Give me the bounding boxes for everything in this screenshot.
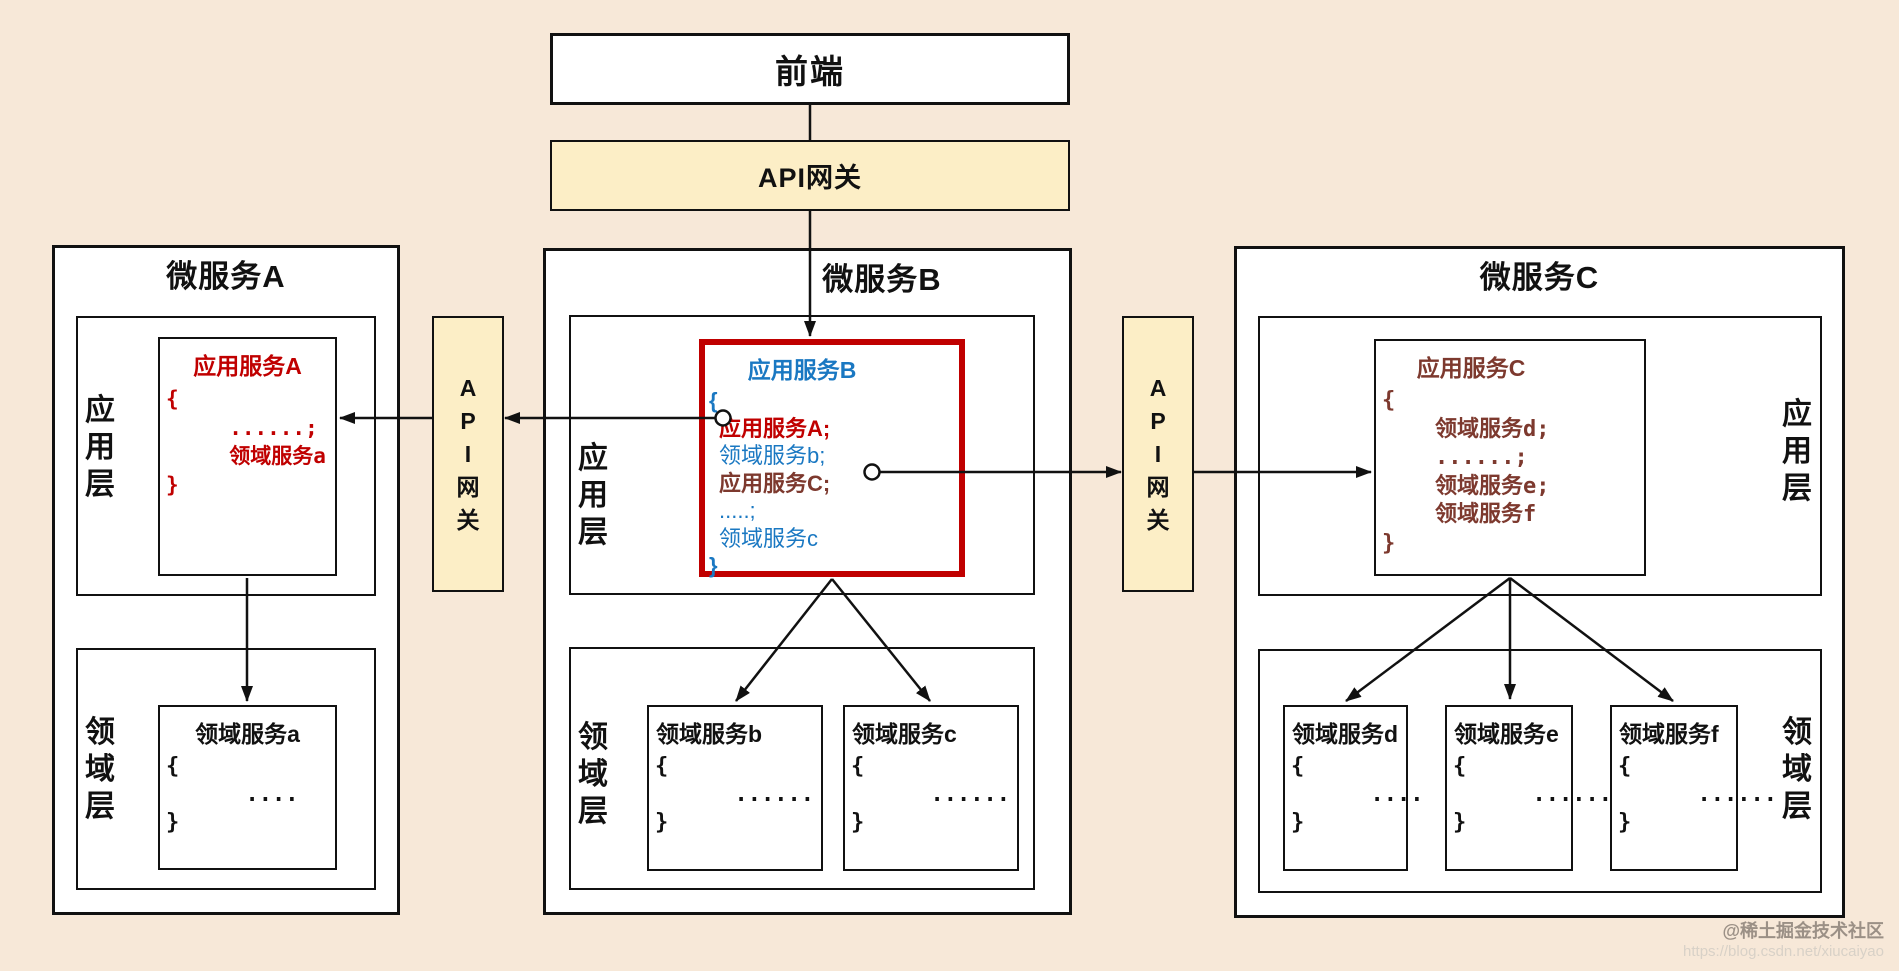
frontend-box: 前端: [550, 33, 1070, 105]
domain-service-a-title: 领域服务a: [160, 707, 335, 749]
api-gateway-left-label: A P I 网 关: [457, 372, 480, 537]
service-a-application-layer-label: 应 用 层: [82, 392, 118, 503]
microservice-c-title: 微服务C: [1234, 252, 1845, 297]
watermark-url: https://blog.csdn.net/xiucaiyao: [1683, 943, 1884, 961]
app-service-a-box: 应用服务A { ......; 领域服务a }: [158, 337, 337, 576]
code-line-dots: .....;: [705, 497, 959, 525]
code-line-domain-service-b: 领域服务b;: [705, 442, 959, 470]
code-line-close-brace: }: [705, 552, 959, 580]
domain-service-f-box: 领域服务f { ...... }: [1610, 705, 1738, 871]
code-line-app-service-c: 应用服务C;: [705, 470, 959, 498]
domain-service-b-title: 领域服务b: [649, 707, 821, 749]
app-service-c-body: { 领域服务d; ......; 领域服务e; 领域服务f }: [1382, 387, 1644, 558]
domain-service-e-title: 领域服务e: [1447, 707, 1571, 749]
service-b-application-layer-label: 应 用 层: [575, 440, 611, 551]
code-line-app-service-a: 应用服务A;: [705, 415, 959, 443]
app-service-c-box: 应用服务C { 领域服务d; ......; 领域服务e; 领域服务f }: [1374, 339, 1646, 576]
watermark: @稀土掘金技术社区 https://blog.csdn.net/xiucaiya…: [1683, 921, 1884, 961]
app-service-b-box: 应用服务B { 应用服务A; 领域服务b; 应用服务C; .....; 领域服务…: [699, 339, 965, 577]
microservice-a-title: 微服务A: [52, 251, 400, 296]
app-service-a-body: { ......; 领域服务a }: [166, 385, 335, 499]
service-a-domain-layer-label: 领 域 层: [82, 714, 118, 825]
microservice-b-title: 微服务B: [712, 254, 1052, 299]
service-b-domain-layer-label: 领 域 层: [575, 719, 611, 830]
watermark-community: @稀土掘金技术社区: [1683, 921, 1884, 943]
domain-service-f-body: { ...... }: [1618, 753, 1736, 837]
app-service-b-title: 应用服务B: [705, 345, 959, 385]
api-gateway-right-box: A P I 网 关: [1122, 316, 1194, 592]
api-gateway-right-label: A P I 网 关: [1147, 372, 1170, 537]
service-c-application-layer-label: 应 用 层: [1779, 396, 1815, 507]
diagram-canvas: 前端 API网关 微服务A 应 用 层 应用服务A { ......; 领域服务…: [0, 0, 1899, 971]
app-service-a-title: 应用服务A: [160, 339, 335, 381]
service-c-domain-layer-label: 领 域 层: [1779, 714, 1815, 825]
app-service-b-body: { 应用服务A; 领域服务b; 应用服务C; .....; 领域服务c }: [705, 387, 959, 580]
api-gateway-left-box: A P I 网 关: [432, 316, 504, 592]
domain-service-e-body: { ...... }: [1453, 753, 1571, 837]
domain-service-b-box: 领域服务b { ...... }: [647, 705, 823, 871]
domain-service-e-box: 领域服务e { ...... }: [1445, 705, 1573, 871]
domain-service-c-title: 领域服务c: [845, 707, 1017, 749]
domain-service-b-body: { ...... }: [655, 753, 821, 837]
code-line-open-brace: {: [705, 387, 959, 415]
domain-service-f-title: 领域服务f: [1612, 707, 1736, 749]
domain-service-d-body: { .... }: [1291, 753, 1406, 837]
code-line-domain-service-c: 领域服务c: [705, 525, 959, 553]
domain-service-a-box: 领域服务a { .... }: [158, 705, 337, 870]
frontend-label: 前端: [775, 45, 845, 93]
api-gateway-top-label: API网关: [758, 156, 862, 195]
domain-service-a-body: { .... }: [166, 753, 335, 837]
domain-service-c-box: 领域服务c { ...... }: [843, 705, 1019, 871]
api-gateway-top-box: API网关: [550, 140, 1070, 211]
app-service-c-title: 应用服务C: [1376, 341, 1644, 383]
domain-service-d-title: 领域服务d: [1285, 707, 1406, 749]
domain-service-d-box: 领域服务d { .... }: [1283, 705, 1408, 871]
domain-service-c-body: { ...... }: [851, 753, 1017, 837]
